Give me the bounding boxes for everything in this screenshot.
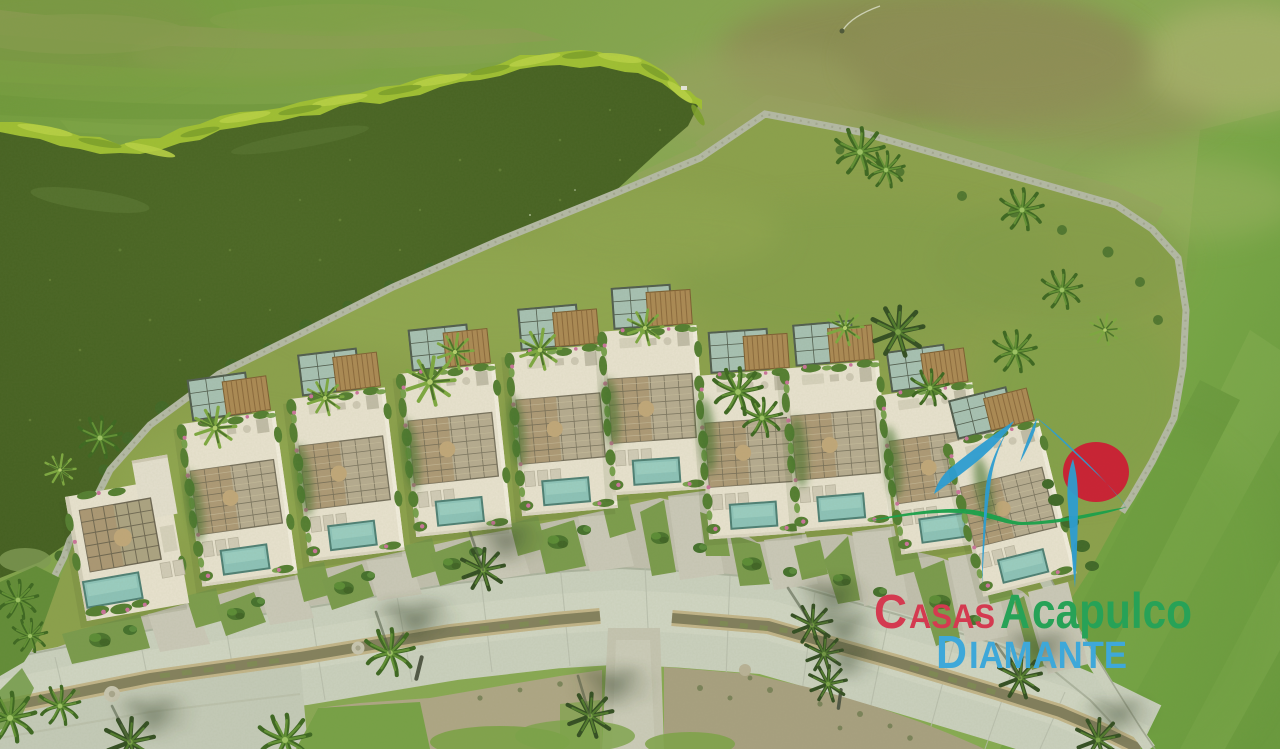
svg-text:A: A — [1000, 586, 1030, 639]
svg-text:capulco: capulco — [1032, 583, 1192, 639]
svg-text:C: C — [874, 586, 907, 639]
svg-text:IAMANTE: IAMANTE — [969, 635, 1127, 677]
svg-text:D: D — [936, 626, 967, 678]
